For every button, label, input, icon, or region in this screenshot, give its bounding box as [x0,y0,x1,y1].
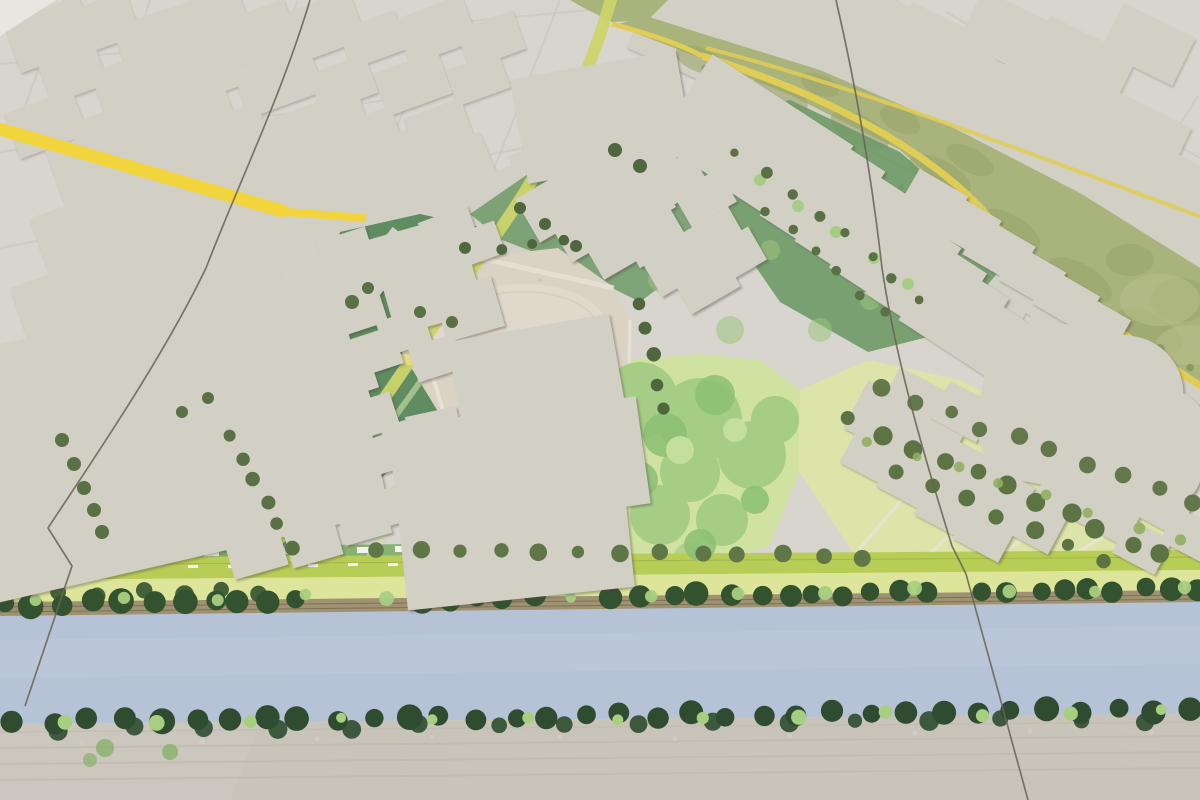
bank-trees-south-tree [821,700,843,722]
trees-shape [633,159,647,173]
bank-trees-south-tree [491,718,507,734]
trees-tree [873,426,892,445]
riverfront-dashes-shape [308,564,318,567]
bank-trees-south-tree [848,714,862,728]
buildings-shape [295,269,325,299]
trees-tree [831,266,841,276]
buildings-shape [937,302,991,343]
trees-tree [572,546,584,558]
trees-tree [869,252,878,261]
trees-shape [345,295,359,309]
bank-trees-south-tree [1110,699,1129,718]
trees-tree [261,496,275,510]
trees-tree [530,544,548,562]
buildings-shape [359,407,386,427]
trees-tree [1011,428,1028,445]
trees-tree [224,430,236,442]
shore-tree [788,733,792,737]
bank-trees-south-tree [577,705,596,724]
park-canopies-shape [666,436,694,464]
bank-trees-south-tree [195,719,213,737]
trees-tree [788,189,798,199]
bank-trees-south-tree [284,706,309,731]
shore-tree [200,739,206,745]
trees-tree [527,239,537,249]
trees-shape [202,392,214,404]
buildings-shape [241,541,272,562]
bank-trees-north-tree [861,583,879,601]
trees-shape [176,406,188,418]
trees-shape [77,481,91,495]
trees-tree [368,542,384,558]
bank-trees-south-tree [879,705,893,719]
city-blocks-shape [239,22,277,46]
trees-tree [459,242,471,254]
buildings-shape [337,465,364,485]
layer-shore [0,714,1200,800]
bank-trees-north-tree [665,586,684,605]
trees-tree [1096,554,1110,568]
bank-trees-north-tree [1089,586,1101,598]
bank-trees-north-tree [212,594,224,606]
bank-trees-south-tree [409,715,427,733]
bank-trees-south-tree [791,710,806,725]
trees-tree [889,465,904,480]
park-canopies-shape [751,396,799,444]
trees-tree [854,550,871,567]
trees-shape [792,200,804,212]
trees-tree [1041,441,1057,457]
model-generated-layers [0,0,1200,800]
trees-tree [639,322,652,335]
bank-trees-north-tree [972,583,991,602]
bank-trees-south-tree [125,718,143,736]
buildings-shape [691,186,720,209]
shore-shape [162,744,178,760]
trees-tree [774,545,792,563]
trees-tree [761,167,773,179]
trees-tree [814,211,825,222]
buildings-shape [111,544,138,563]
bank-trees-north-tree [1033,583,1051,601]
trees-tree [695,546,711,562]
trees-tree [1062,503,1081,522]
bank-trees-north-tree [732,587,745,600]
buildings-shape [307,315,334,341]
bank-trees-south-tree [895,701,918,724]
city-blocks-shape [475,29,507,50]
city-blocks-shape [463,70,493,89]
bank-trees-north-tree [833,586,853,606]
buildings-shape [623,189,656,216]
bank-trees-north-tree [1178,581,1191,594]
bank-trees-south-tree [754,706,774,726]
trees-tree [236,453,249,466]
trees-tree [559,235,570,246]
bank-trees-north-tree [907,581,922,596]
park-canopies-shape [695,375,735,415]
shore-tree [672,736,677,741]
buildings-shape [545,139,565,154]
trees-tree [496,244,507,255]
trees-shape [570,240,582,252]
trees-tree [988,509,1003,524]
shore-tree [1028,729,1033,734]
trees-tree [886,273,896,283]
bank-trees-south-tree [612,714,623,725]
buildings-shape [721,244,750,267]
bank-trees-south-tree [522,712,534,724]
shore-tree [912,730,917,735]
trees-tree [1026,521,1044,539]
trees-tree [816,548,832,564]
city-blocks-shape [1055,48,1105,83]
bank-trees-south-tree [1034,696,1059,721]
trees-tree [873,379,891,397]
city-blocks-shape [257,68,299,93]
trees-tree [1085,519,1105,539]
trees-tree [915,296,924,305]
shore-tree [315,736,320,741]
trees-tree [855,291,865,301]
bank-trees-north-tree [136,582,152,598]
bank-trees-south-tree [647,707,668,728]
city-blocks-shape [187,63,223,86]
shore-tree [1149,731,1153,735]
city-blocks-shape [987,19,1032,50]
trees-shape [414,306,426,318]
bank-trees-south-tree [630,715,648,733]
bank-trees-north-tree [225,590,248,613]
bank-trees-south-tree [149,715,165,731]
trees-shape [539,218,551,230]
city-blocks-shape [395,73,431,95]
bank-trees-north-tree [645,590,657,602]
bank-trees-south-tree [244,715,257,728]
trees-shape [362,282,374,294]
trees-tree [840,228,849,237]
trees-tree [729,547,745,563]
buildings-shape [1094,414,1174,476]
bank-trees-south-tree [919,711,939,731]
buildings-shape [359,342,388,362]
city-blocks-shape [57,63,89,85]
ground-accents-shape [808,318,832,342]
bank-trees-north-tree [1003,585,1017,599]
bank-trees-south-tree [219,708,241,730]
riverfront-dashes-shape [188,565,198,568]
trees-shape [608,143,622,157]
park-canopies-shape [723,418,747,442]
bank-trees-south-tree [336,713,346,723]
shore-shape [96,739,114,757]
bank-trees-south-tree [75,708,97,730]
bank-trees-south-tree [342,720,361,739]
bank-trees-south-tree [1156,704,1167,715]
trees-tree [789,225,799,235]
bank-trees-north-tree [566,592,576,602]
trees-tree [651,379,664,392]
bank-trees-north-tree [118,592,130,604]
trees-shape [902,278,914,290]
trees-tree [657,403,669,415]
trees-tree [1083,508,1093,518]
trees-tree [993,478,1003,488]
bank-trees-north-tree [30,594,42,606]
trees-tree [945,406,958,419]
trees-tree [1152,481,1167,496]
bank-trees-south-tree [58,715,73,730]
model-scene [0,0,1200,800]
city-blocks-shape [357,29,389,50]
buildings-shape [299,532,328,553]
buildings-shape [351,512,378,531]
trees-shape [514,202,526,214]
trees-tree [270,517,283,530]
bank-trees-north-tree [89,588,106,605]
bank-trees-south-tree [1136,713,1154,731]
bank-trees-north-tree [300,589,312,601]
trees-tree [812,246,821,255]
bank-trees-north-tree [1137,578,1156,597]
trees-tree [1150,544,1169,563]
trees-tree [652,544,668,560]
bank-trees-north-tree [753,586,773,606]
city-blocks-shape [29,22,71,48]
bank-trees-south-tree [0,711,22,733]
field-shape [538,278,542,282]
trees-shape [95,525,109,539]
bank-trees-north-tree [1101,582,1122,603]
bank-trees-south-tree [863,705,881,723]
trees-shape [87,503,101,517]
city-blocks-shape [1127,30,1169,59]
hill-texture-shape [1106,244,1154,276]
riverfront-dashes-shape [388,563,398,566]
bank-trees-north-tree [250,586,267,603]
trees-shape [67,457,81,471]
bank-trees-north-tree [175,585,194,604]
buildings-shape [931,493,962,521]
trees-tree [1125,537,1141,553]
hill-texture-shape [1120,274,1200,326]
trees-tree [730,149,738,157]
buildings-shape [856,443,885,468]
bank-trees-north-tree [780,585,802,607]
bank-trees-north-tree [818,586,832,600]
bank-trees-south-tree [427,714,437,724]
buildings-shape [1051,288,1081,312]
buildings-shape [332,243,367,281]
bank-trees-south-tree [1064,707,1078,721]
park-canopies-shape [741,486,769,514]
trees-tree [453,545,466,558]
trees-tree [971,464,987,480]
buildings-shape [164,519,193,539]
layer-river [0,602,1200,724]
riverfront-dashes-shape [348,563,358,566]
city-blocks-shape [117,71,161,98]
trees-tree [413,541,430,558]
trees-tree [633,298,646,311]
buildings-shape [423,349,450,368]
photo-urban-planning-model [0,0,1200,800]
trees-tree [494,543,508,557]
buildings-shape [302,484,331,505]
bank-trees-south-tree [697,712,709,724]
bank-trees-north-tree [684,581,709,606]
trees-shape [830,226,842,238]
bank-trees-north-tree [1054,579,1075,600]
shore-tree [79,740,84,745]
buildings-shape [454,490,572,548]
trees-tree [647,347,661,361]
buildings-shape [1017,264,1047,288]
trees-tree [611,545,629,563]
trees-tree [760,207,769,216]
bank-trees-south-tree [365,709,383,727]
shore-tree [557,735,562,740]
trees-tree [1041,490,1052,501]
trees-tree [972,422,987,437]
trees-tree [285,541,300,556]
bank-trees-south-tree [535,707,557,729]
trees-tree [958,490,975,507]
bank-trees-south-tree [976,709,989,722]
trees-tree [913,453,922,462]
bank-trees-south-tree [268,720,287,739]
trees-tree [245,472,259,486]
trees-tree [954,462,965,473]
trees-tree [1134,523,1146,535]
ground-accents-shape [716,316,744,344]
bank-trees-north-tree [379,591,394,606]
city-blocks-shape [299,16,341,41]
trees-tree [1175,534,1186,545]
hill-texture-tree [1186,364,1194,372]
trees-tree [1062,539,1074,551]
shore-tree [430,735,434,739]
bank-trees-south-tree [466,710,487,731]
buildings-shape [294,446,323,467]
city-blocks-shape [417,18,455,42]
city-blocks-shape [131,27,163,49]
trees-tree [841,411,855,425]
trees-shape [446,316,458,328]
bank-trees-south-tree [556,716,573,733]
trees-tree [937,453,954,470]
trees-shape [55,433,69,447]
trees-tree [862,437,872,447]
shore-shape [83,753,97,767]
trees-tree [1115,467,1132,484]
trees-tree [1079,457,1096,474]
